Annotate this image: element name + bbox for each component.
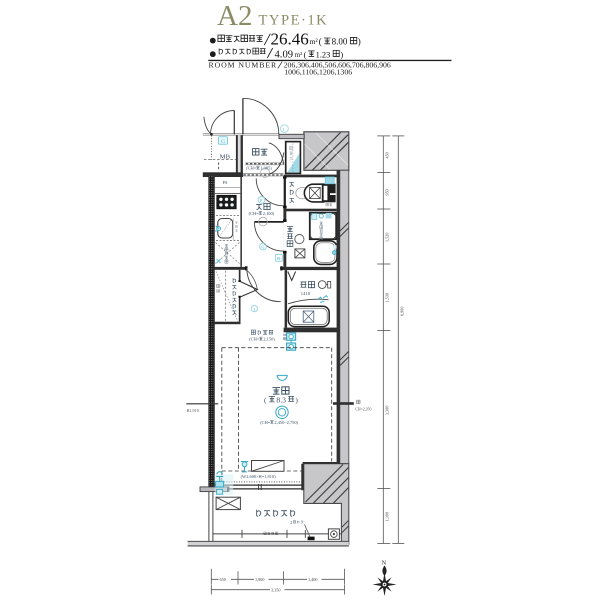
svg-text:4.09: 4.09 xyxy=(275,49,294,60)
svg-text:MB: MB xyxy=(220,153,231,160)
svg-text:1418: 1418 xyxy=(301,291,311,296)
svg-text:26.46: 26.46 xyxy=(271,29,309,48)
svg-text:1006,1106,1206,1306: 1006,1106,1206,1306 xyxy=(284,68,352,77)
svg-text:(CH=: (CH= xyxy=(249,337,260,342)
svg-text:8.00: 8.00 xyxy=(332,36,348,46)
svg-text:(CH=: (CH= xyxy=(260,420,271,425)
svg-text:950: 950 xyxy=(385,189,390,195)
svg-text:ROOM NUMBER: ROOM NUMBER xyxy=(209,60,278,69)
svg-text:2: 2 xyxy=(290,520,292,525)
svg-text:): ) xyxy=(340,50,343,59)
svg-text:(CH=: (CH= xyxy=(249,211,260,216)
svg-text:): ) xyxy=(358,36,361,46)
svg-text:1: 1 xyxy=(253,307,255,312)
svg-text:N: N xyxy=(382,560,387,567)
svg-text:(: ( xyxy=(304,50,307,59)
svg-text:650: 650 xyxy=(220,577,226,582)
svg-text:(CH=: (CH= xyxy=(246,166,257,171)
svg-text:8.3: 8.3 xyxy=(276,396,286,405)
svg-text:1.23: 1.23 xyxy=(316,50,331,59)
svg-text:m²: m² xyxy=(310,37,319,46)
svg-text:TYPE·1K: TYPE·1K xyxy=(259,12,329,28)
svg-text:450: 450 xyxy=(385,152,390,158)
svg-text:PS: PS xyxy=(223,180,228,185)
svg-text:m²: m² xyxy=(295,52,302,59)
svg-text:(: ( xyxy=(319,36,322,46)
svg-text:G: G xyxy=(221,139,225,145)
svg-text:A2: A2 xyxy=(217,0,252,32)
